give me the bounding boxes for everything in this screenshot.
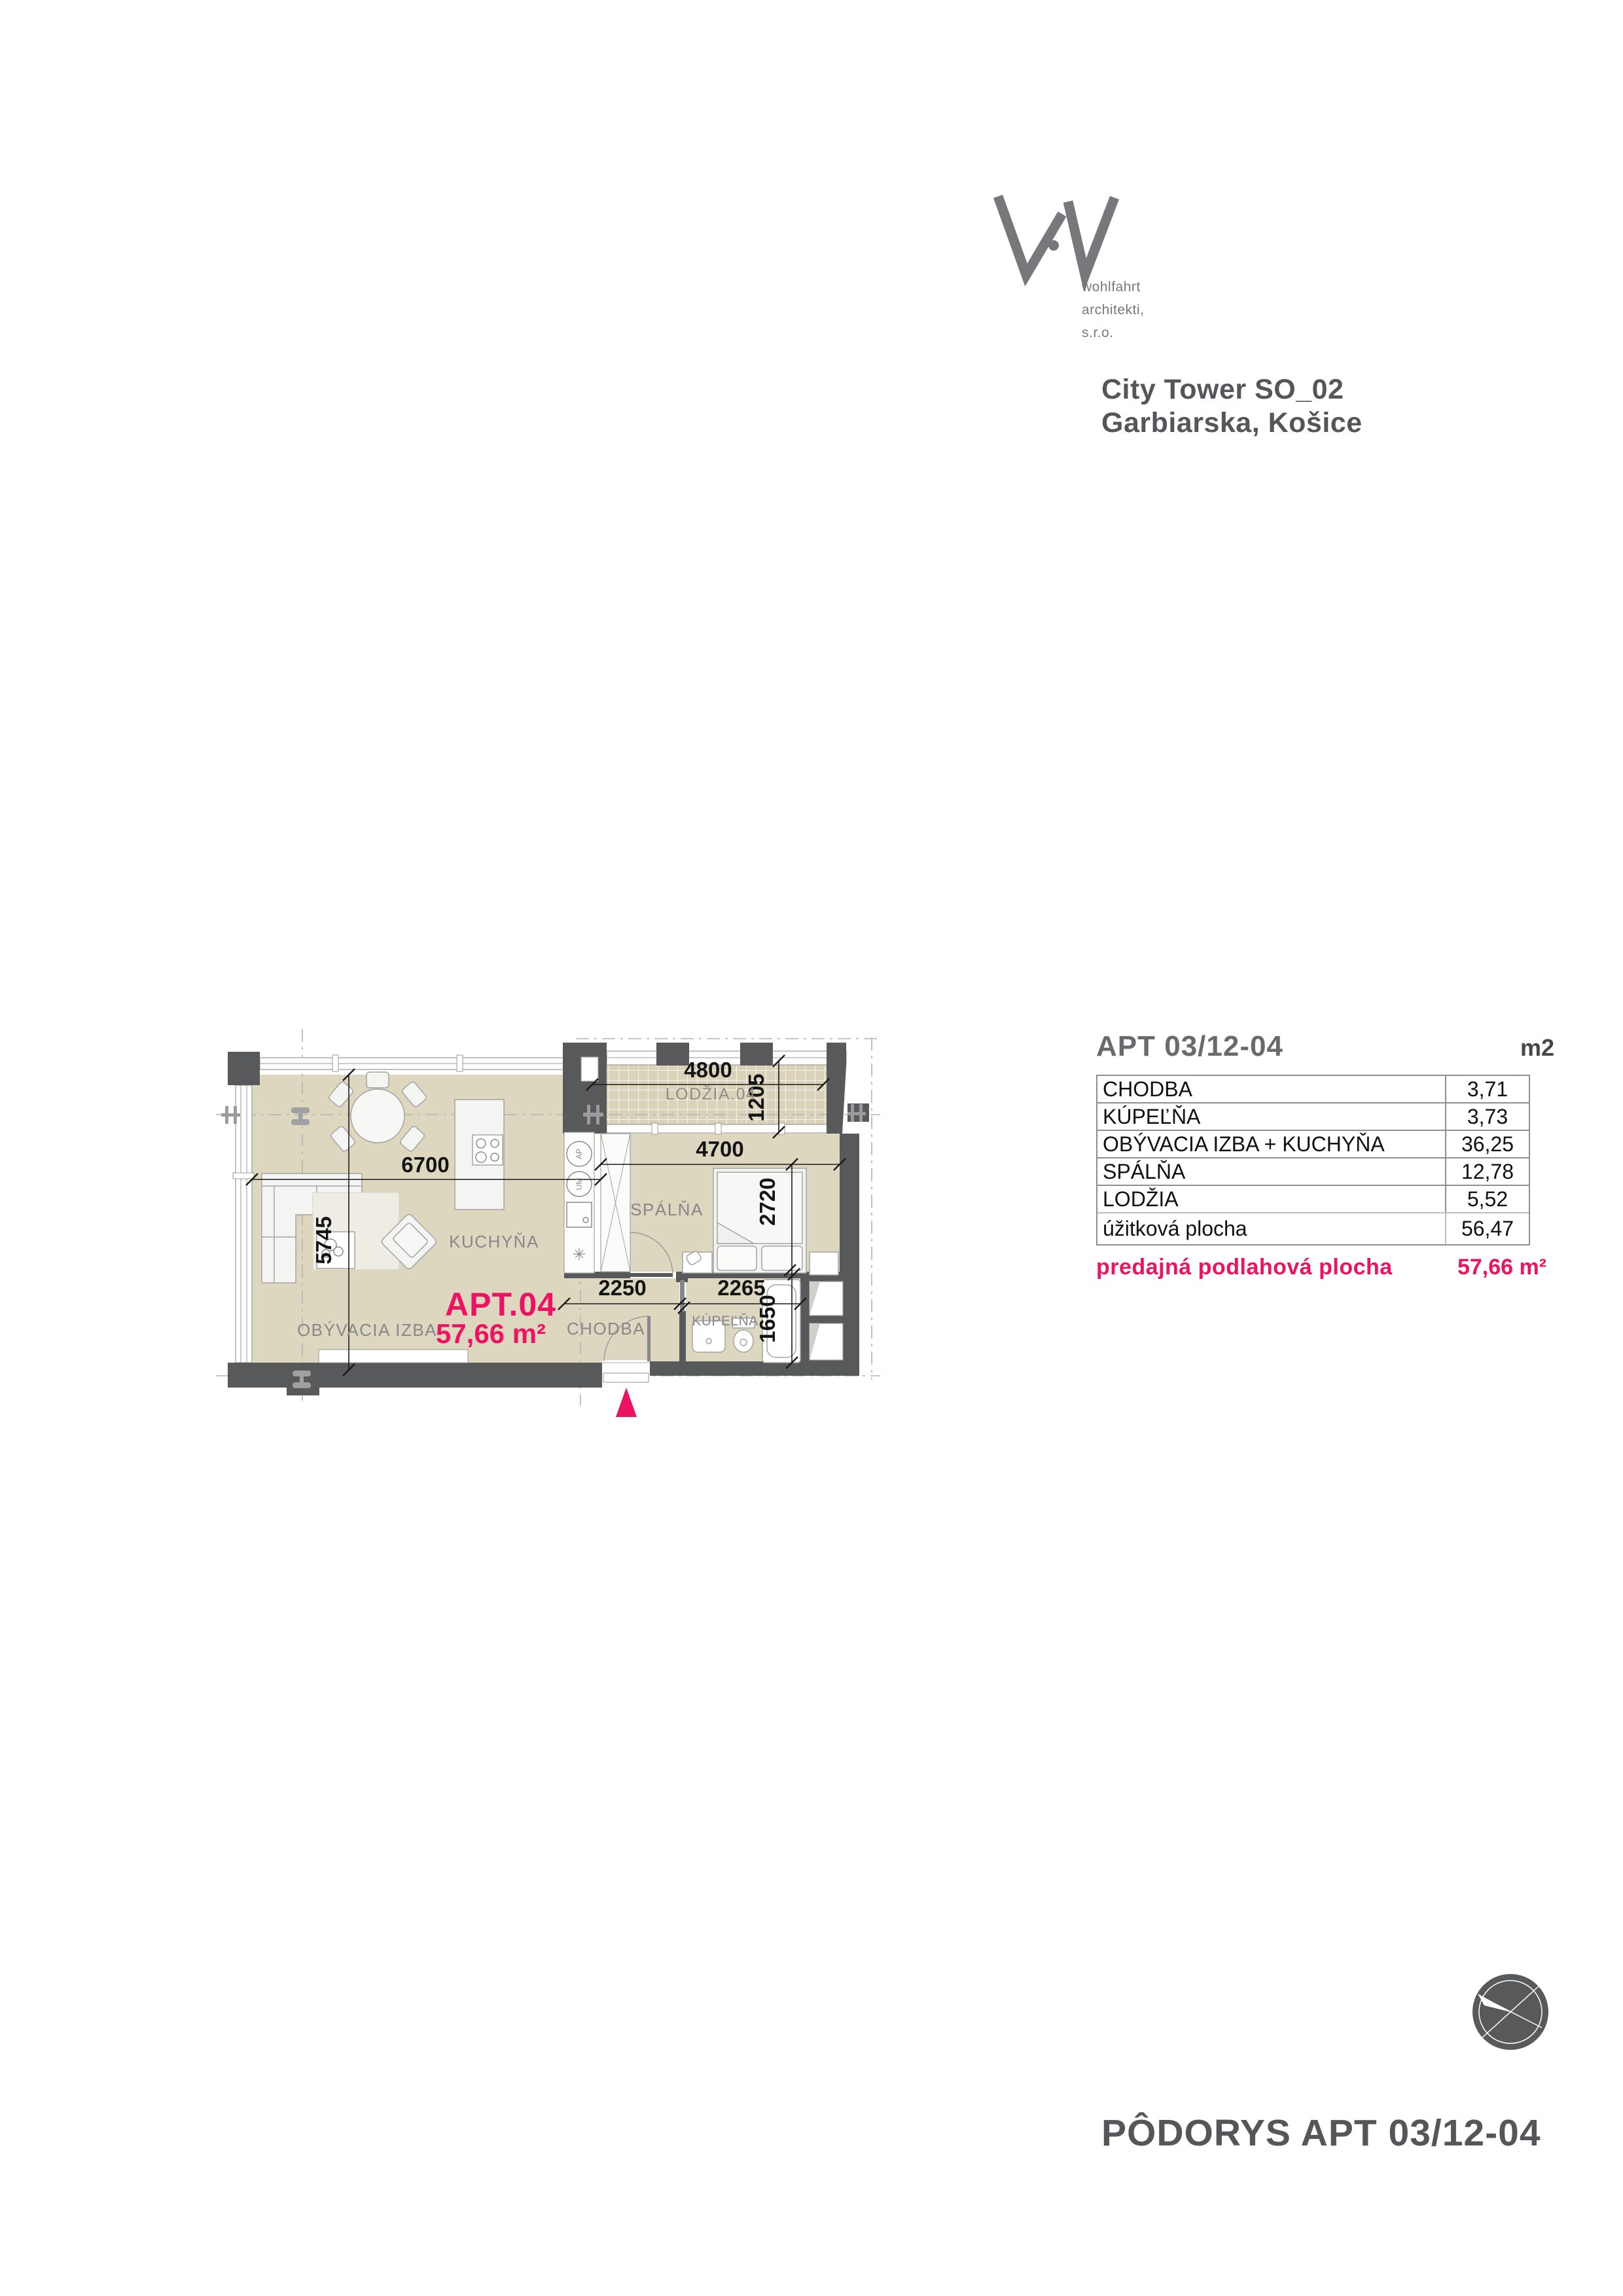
dim-living-depth: 5745 <box>312 1216 336 1264</box>
loggia-glazing <box>607 1124 840 1133</box>
project-header: City Tower SO_02 Garbiarska, Košice <box>1101 373 1363 440</box>
table-row: SPÁLŇA 12,78 <box>1097 1157 1529 1185</box>
wall-column <box>740 1043 773 1066</box>
area-table-unit: m2 <box>1520 1034 1554 1062</box>
dim-bedroom-width: 4700 <box>696 1137 743 1161</box>
label-hall: CHODBA <box>567 1319 645 1338</box>
label-living-room: OBÝVACIA IZBA <box>297 1320 437 1340</box>
table-row: KÚPEĽŇA 3,73 <box>1097 1102 1529 1130</box>
table-row: LODŽIA 5,52 <box>1097 1185 1529 1212</box>
wohlfahrt-logo-icon <box>982 185 1132 289</box>
dim-bathroom-depth: 1650 <box>755 1295 779 1342</box>
subtotal-value: 56,47 <box>1445 1213 1529 1244</box>
entrance-door-leaf <box>647 1316 651 1361</box>
brand-name: wohlfahrt architekti, s.r.o. <box>1082 276 1144 344</box>
dim-hall-width: 2250 <box>598 1276 646 1300</box>
brand-line-3: s.r.o. <box>1082 321 1144 344</box>
label-loggia: LODŽIA.04 <box>666 1085 757 1103</box>
window-mullion <box>233 1173 254 1179</box>
row-value: 3,71 <box>1445 1076 1529 1102</box>
apartment-area: 57,66 m² <box>436 1318 546 1349</box>
label-bedroom: SPÁLŇA <box>630 1200 704 1219</box>
label-appliance-ap: AP <box>575 1149 584 1159</box>
row-label: KÚPEĽŇA <box>1097 1105 1445 1129</box>
row-value: 5,52 <box>1445 1186 1529 1212</box>
total-value: 57,66 m² <box>1453 1255 1551 1280</box>
row-value: 12,78 <box>1445 1158 1529 1185</box>
north-compass-icon <box>1470 1971 1551 2053</box>
desk-chair <box>683 1250 712 1273</box>
label-bathroom: KÚPEĽŇA <box>692 1314 758 1329</box>
table-row: OBÝVACIA IZBA + KUCHYŇA 36,25 <box>1097 1130 1529 1157</box>
drawing-title: PÔDORYS APT 03/12-04 <box>1101 2111 1541 2155</box>
dim-bedroom-depth: 2720 <box>755 1177 779 1225</box>
area-table: APT 03/12-04 m2 CHODBA 3,71 KÚPEĽŇA 3,73… <box>1096 1030 1556 1283</box>
row-value: 3,73 <box>1445 1103 1529 1130</box>
total-label: predajná podlahová plocha <box>1096 1255 1393 1280</box>
wall-column <box>563 1043 607 1134</box>
label-appliance-um: UM <box>575 1178 584 1191</box>
brand-line-2: architekti, <box>1082 298 1144 321</box>
project-name: City Tower SO_02 <box>1101 373 1363 406</box>
dim-living-width: 6700 <box>401 1153 449 1177</box>
total-row: predajná podlahová plocha 57,66 m² <box>1096 1255 1556 1283</box>
wardrobe <box>601 1134 630 1272</box>
nightstand <box>810 1252 838 1275</box>
floor-plan: 6700 5745 4800 1205 4700 2720 2250 2265 … <box>196 1008 916 1440</box>
row-value: 36,25 <box>1445 1131 1529 1157</box>
row-label: CHODBA <box>1097 1077 1445 1102</box>
row-label: SPÁLŇA <box>1097 1160 1445 1184</box>
wall-column <box>827 1043 846 1066</box>
table-row-subtotal: úžitková plocha 56,47 <box>1097 1212 1529 1244</box>
wall-column <box>228 1052 260 1085</box>
apartment-code: APT.04 <box>445 1286 556 1323</box>
table-row: CHODBA 3,71 <box>1097 1076 1529 1102</box>
window-mullion <box>332 1055 338 1071</box>
project-address: Garbiarska, Košice <box>1101 406 1363 440</box>
entrance-marker-icon <box>616 1388 637 1417</box>
kitchen-island <box>455 1100 504 1210</box>
brand-line-1: wohlfahrt <box>1082 276 1144 298</box>
sheet: wohlfahrt architekti, s.r.o. City Tower … <box>0 0 1623 2296</box>
row-label: OBÝVACIA IZBA + KUCHYŇA <box>1097 1132 1445 1157</box>
dim-loggia-width: 4800 <box>684 1058 732 1082</box>
subtotal-label: úžitková plocha <box>1097 1217 1445 1241</box>
tv-stand <box>319 1350 468 1363</box>
row-label: LODŽIA <box>1097 1187 1445 1211</box>
side-window <box>581 1057 598 1081</box>
area-table-title: APT 03/12-04 <box>1096 1030 1283 1062</box>
window-mullion <box>457 1055 463 1071</box>
label-kitchen: KUCHYŇA <box>449 1232 539 1251</box>
